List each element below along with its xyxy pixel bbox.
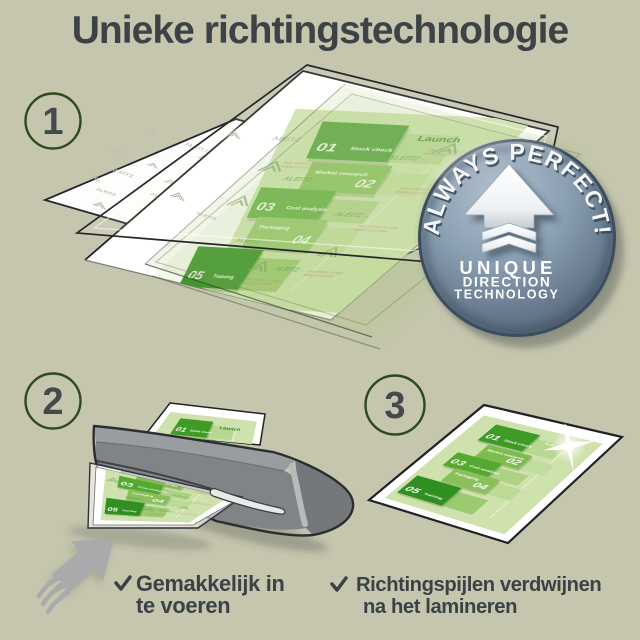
svg-text:TECHNOLOGY: TECHNOLOGY: [454, 288, 559, 302]
svg-text:05: 05: [107, 506, 119, 513]
svg-text:na het lamineren: na het lamineren: [363, 596, 517, 618]
svg-text:3: 3: [384, 385, 405, 427]
svg-text:te voeren: te voeren: [136, 593, 230, 618]
svg-text:1: 1: [42, 101, 63, 143]
svg-text:2: 2: [42, 381, 63, 423]
svg-text:Richtingspijlen verdwijnen: Richtingspijlen verdwijnen: [356, 574, 601, 596]
svg-text:Unieke richtingstechnologie: Unieke richtingstechnologie: [72, 9, 569, 52]
